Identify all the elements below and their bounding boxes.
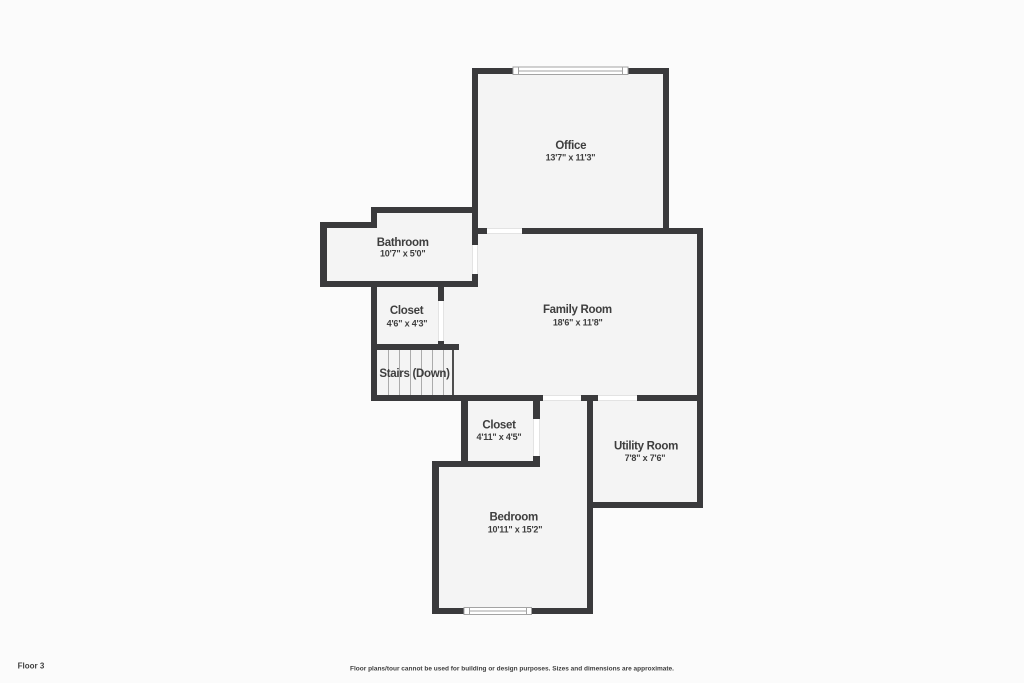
svg-text:10'7" x 5'0": 10'7" x 5'0": [380, 249, 425, 259]
svg-text:Floor plans/tour cannot be use: Floor plans/tour cannot be used for buil…: [350, 666, 674, 673]
svg-text:10'11" x 15'2": 10'11" x 15'2": [488, 524, 543, 534]
svg-text:4'6" x 4'3": 4'6" x 4'3": [387, 318, 428, 328]
svg-text:Family Room: Family Room: [543, 304, 612, 316]
svg-text:Office: Office: [555, 140, 586, 152]
svg-text:18'6" x 11'8": 18'6" x 11'8": [553, 318, 603, 328]
svg-text:Bathroom: Bathroom: [377, 237, 429, 249]
svg-text:Floor 3: Floor 3: [18, 661, 45, 670]
svg-text:7'8" x 7'6": 7'8" x 7'6": [625, 453, 666, 463]
svg-text:4'11" x 4'5": 4'11" x 4'5": [477, 432, 522, 442]
svg-text:Closet: Closet: [482, 420, 516, 432]
svg-text:Bedroom: Bedroom: [490, 511, 538, 523]
svg-text:Utility Room: Utility Room: [614, 440, 678, 452]
svg-text:Stairs (Down): Stairs (Down): [379, 368, 450, 380]
svg-text:Closet: Closet: [390, 305, 424, 317]
svg-text:13'7" x 11'3": 13'7" x 11'3": [546, 152, 596, 162]
